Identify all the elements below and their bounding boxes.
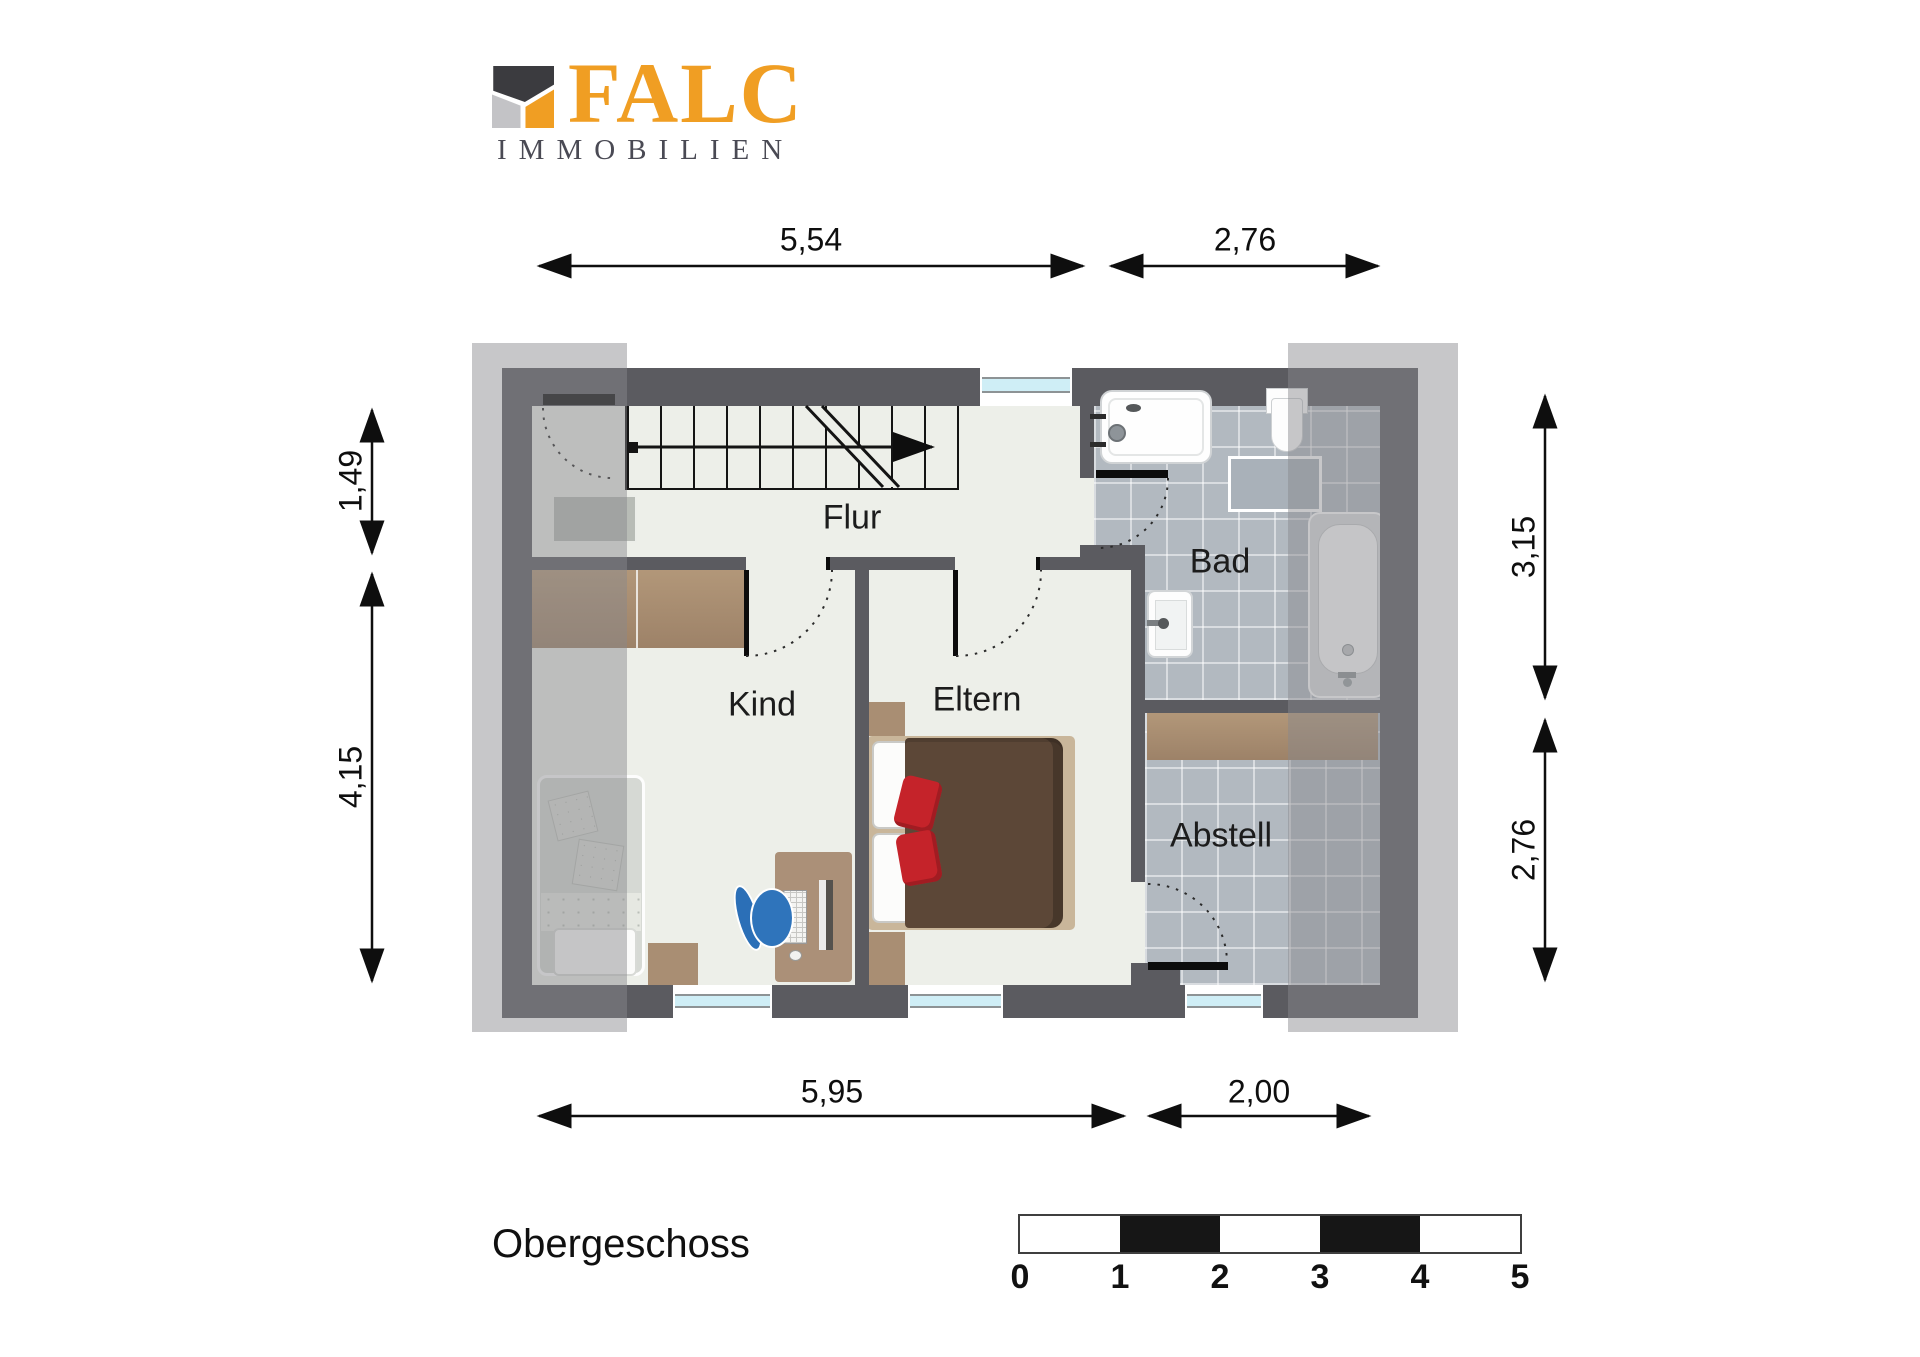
scale-tick-0: 0 xyxy=(1011,1258,1030,1297)
office-chair-seat xyxy=(750,888,794,948)
window-glass xyxy=(675,994,770,1008)
room-label-parents: Eltern xyxy=(933,681,1022,720)
brand-logo-icon xyxy=(492,64,554,130)
scale-tick-4: 4 xyxy=(1411,1258,1430,1297)
room-label-bath: Bad xyxy=(1190,543,1251,582)
window-storage xyxy=(1185,985,1263,1018)
brand-subtitle: IMMOBILIEN xyxy=(497,134,794,167)
window-glass xyxy=(1187,994,1261,1008)
bath-sink-tap-handle xyxy=(1090,442,1106,447)
door-jamb xyxy=(826,557,830,570)
room-label-hall: Flur xyxy=(823,499,882,538)
desk-monitor xyxy=(819,880,833,950)
window-child xyxy=(673,985,772,1018)
dim-top-right: 2,76 xyxy=(1214,222,1276,259)
scale-tick-1: 1 xyxy=(1111,1258,1130,1297)
window-glass xyxy=(982,377,1070,393)
logo-gray-shape xyxy=(492,95,521,128)
room-label-storage: Abstell xyxy=(1170,817,1272,856)
wall-parents-bath xyxy=(1131,570,1145,882)
wall-corner-block xyxy=(1080,545,1145,570)
window-top-hall xyxy=(980,368,1072,406)
floor-label: Obergeschoss xyxy=(492,1222,750,1267)
scale-tick-2: 2 xyxy=(1211,1258,1230,1297)
staircase xyxy=(625,406,959,490)
roof-slope-band-right xyxy=(1288,343,1458,1032)
wall-hall-parents xyxy=(830,557,955,570)
child-nightstand xyxy=(648,943,698,985)
door-leaf-storage xyxy=(1148,962,1228,970)
scale-bar xyxy=(1018,1214,1522,1254)
room-label-child: Kind xyxy=(728,686,796,725)
dim-left-upper: 1,49 xyxy=(333,450,370,512)
dim-left-lower: 4,15 xyxy=(333,746,370,808)
dim-right-upper: 3,15 xyxy=(1506,516,1543,578)
dim-bottom-right: 2,00 xyxy=(1228,1074,1290,1111)
scale-segment xyxy=(1220,1216,1320,1252)
dim-bottom-left: 5,95 xyxy=(801,1074,863,1111)
wall-child-parents xyxy=(855,570,869,985)
child-wardrobe-divider xyxy=(636,570,638,648)
bath-sink-drain xyxy=(1126,404,1141,412)
dim-top-left: 5,54 xyxy=(780,222,842,259)
desk-mouse xyxy=(789,950,802,961)
window-parents xyxy=(908,985,1003,1018)
door-leaf-bath xyxy=(1096,470,1168,478)
brand-title: FALC xyxy=(568,50,804,136)
scale-tick-5: 5 xyxy=(1511,1258,1530,1297)
scale-segment xyxy=(1120,1216,1220,1252)
floorplan-page: FALC IMMOBILIEN xyxy=(0,0,1920,1357)
door-jamb xyxy=(1036,557,1040,570)
door-leaf-child xyxy=(744,570,749,656)
door-leaf-parents xyxy=(953,570,958,656)
hand-basin-faucet-knob xyxy=(1158,618,1169,629)
bath-sink-faucet xyxy=(1108,424,1126,442)
dim-right-lower: 2,76 xyxy=(1506,819,1543,881)
scale-segment xyxy=(1420,1216,1520,1252)
scale-segment xyxy=(1020,1216,1120,1252)
roof-slope-band-left xyxy=(472,343,627,1032)
wall-hall-parents-right xyxy=(1040,557,1080,570)
scale-tick-3: 3 xyxy=(1311,1258,1330,1297)
bath-sink-tap-handle xyxy=(1090,414,1106,419)
scale-segment xyxy=(1320,1216,1420,1252)
window-glass xyxy=(910,994,1001,1008)
